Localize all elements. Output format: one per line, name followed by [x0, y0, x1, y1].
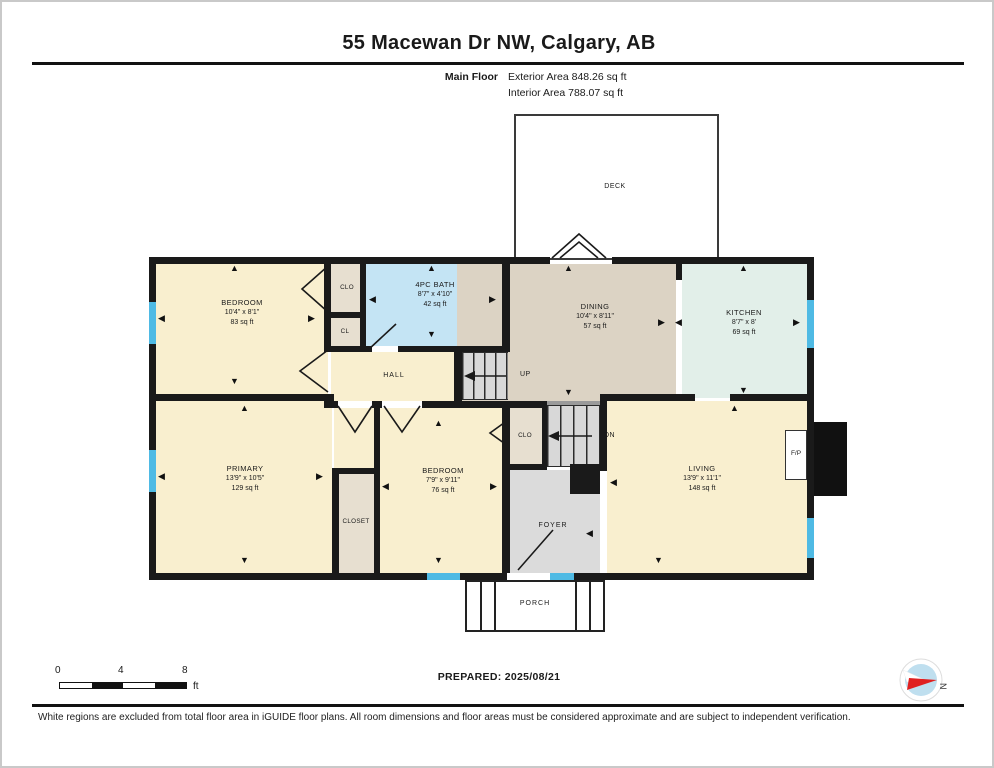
fireplace-block — [814, 422, 847, 496]
wall — [460, 573, 507, 580]
dim-arrow-down-icon: ▼ — [564, 388, 573, 397]
porch-step-line — [589, 580, 591, 632]
dim-arrow-up-icon: ▲ — [730, 404, 739, 413]
header-divider — [32, 62, 964, 65]
scale-segment — [60, 683, 92, 688]
wall — [454, 352, 462, 401]
exterior-area: Exterior Area 848.26 sq ft — [508, 71, 626, 83]
wall — [374, 408, 380, 573]
wall — [422, 401, 514, 408]
footer-divider — [32, 704, 964, 707]
wall — [149, 257, 550, 264]
floor-label: Main Floor — [332, 71, 498, 83]
dim-arrow-right-icon: ▶ — [308, 314, 315, 323]
window-marker — [427, 573, 460, 580]
window-marker — [807, 518, 814, 558]
dim-arrow-left-icon: ◀ — [675, 318, 682, 327]
wall — [600, 394, 695, 401]
up-label: UP — [520, 371, 531, 378]
page-title: 55 Macewan Dr NW, Calgary, AB — [2, 32, 994, 55]
wall — [324, 401, 338, 408]
wall — [676, 264, 682, 280]
dim-arrow-down-icon: ▼ — [240, 556, 249, 565]
porch-step-line — [494, 580, 496, 632]
wall — [510, 401, 547, 408]
wall — [730, 394, 814, 401]
wall — [149, 573, 427, 580]
stair-rail — [547, 401, 602, 405]
bedroom-top-label: BEDROOM 10'4" x 8'1" 83 sq ft — [221, 298, 263, 328]
dim-arrow-down-icon: ▼ — [230, 377, 239, 386]
dim-arrow-left-icon: ◀ — [369, 295, 376, 304]
bedroom-mid-label: BEDROOM 7'9" x 9'11" 76 sq ft — [422, 466, 464, 496]
hall-label: HALL — [383, 372, 405, 379]
deck-label: DECK — [604, 183, 625, 190]
wall — [372, 401, 382, 408]
interior-area: Interior Area 788.07 sq ft — [508, 87, 623, 99]
kitchen-label: KITCHEN 8'7" x 8' 69 sq ft — [726, 308, 762, 338]
wall — [332, 468, 339, 573]
dim-arrow-up-icon: ▲ — [564, 264, 573, 273]
wall — [502, 264, 510, 352]
closet-label: CLOSET — [343, 518, 370, 525]
dim-arrow-up-icon: ▲ — [240, 404, 249, 413]
floorplan-page: 55 Macewan Dr NW, Calgary, AB Main Floor… — [0, 0, 994, 768]
dim-arrow-down-icon: ▼ — [434, 556, 443, 565]
dim-arrow-left-icon: ◀ — [158, 472, 165, 481]
porch-label: PORCH — [520, 600, 550, 607]
window-marker — [149, 450, 156, 492]
dim-arrow-left-icon: ◀ — [382, 482, 389, 491]
scale-segment — [155, 683, 187, 688]
cl-label: CL — [341, 328, 350, 335]
porch-step-line — [480, 580, 482, 632]
window-marker — [149, 302, 156, 344]
wall — [324, 264, 331, 348]
wall — [542, 408, 547, 464]
room-bedroom-top — [156, 264, 328, 394]
dim-arrow-left-icon: ◀ — [158, 314, 165, 323]
wall — [360, 264, 366, 352]
window-marker — [807, 300, 814, 348]
dim-arrow-right-icon: ▶ — [316, 472, 323, 481]
dim-arrow-left-icon: ◀ — [586, 529, 593, 538]
scale-bar — [59, 682, 187, 689]
porch-step-line — [575, 580, 577, 632]
clo-top-label: CLO — [340, 284, 354, 291]
stairs-up — [462, 352, 508, 400]
wall — [149, 394, 334, 401]
wall — [612, 257, 814, 264]
primary-label: PRIMARY 13'9" x 10'5" 129 sq ft — [226, 464, 264, 494]
dim-arrow-left-icon: ◀ — [610, 478, 617, 487]
dim-arrow-right-icon: ▶ — [793, 318, 800, 327]
wall — [324, 312, 366, 318]
bath-label: 4PC BATH 8'7" x 4'10" 42 sq ft — [415, 280, 454, 310]
dim-arrow-right-icon: ▶ — [658, 318, 665, 327]
wall — [360, 346, 372, 352]
dim-arrow-down-icon: ▼ — [654, 556, 663, 565]
dim-arrow-up-icon: ▲ — [427, 264, 436, 273]
wall — [570, 464, 600, 494]
wall — [574, 573, 814, 580]
dim-arrow-down-icon: ▼ — [427, 330, 436, 339]
dn-label: DN — [604, 432, 615, 439]
dim-arrow-down-icon: ▼ — [739, 386, 748, 395]
living-label: LIVING 13'9" x 11'1" 148 sq ft — [683, 464, 721, 494]
dim-arrow-right-icon: ▶ — [490, 482, 497, 491]
dim-arrow-right-icon: ▶ — [489, 295, 496, 304]
foyer-label: FOYER — [538, 522, 567, 529]
scale-segment — [123, 683, 155, 688]
disclaimer-text: White regions are excluded from total fl… — [38, 712, 958, 723]
compass-n-label: N — [938, 683, 948, 690]
prepared-date: PREPARED: 2025/08/21 — [2, 671, 994, 683]
dim-arrow-up-icon: ▲ — [739, 264, 748, 273]
fireplace-label: F/P — [791, 450, 801, 457]
wall — [502, 401, 510, 573]
dim-arrow-up-icon: ▲ — [230, 264, 239, 273]
clo-mid-label: CLO — [518, 432, 532, 439]
wall — [510, 464, 547, 470]
scale-segment — [92, 683, 124, 688]
wall — [332, 468, 380, 474]
dining-label: DINING 10'4" x 8'11" 57 sq ft — [576, 302, 614, 332]
stairs-down — [547, 405, 600, 467]
room-primary-entry — [334, 408, 374, 468]
dim-arrow-up-icon: ▲ — [434, 419, 443, 428]
window-marker — [550, 573, 574, 580]
